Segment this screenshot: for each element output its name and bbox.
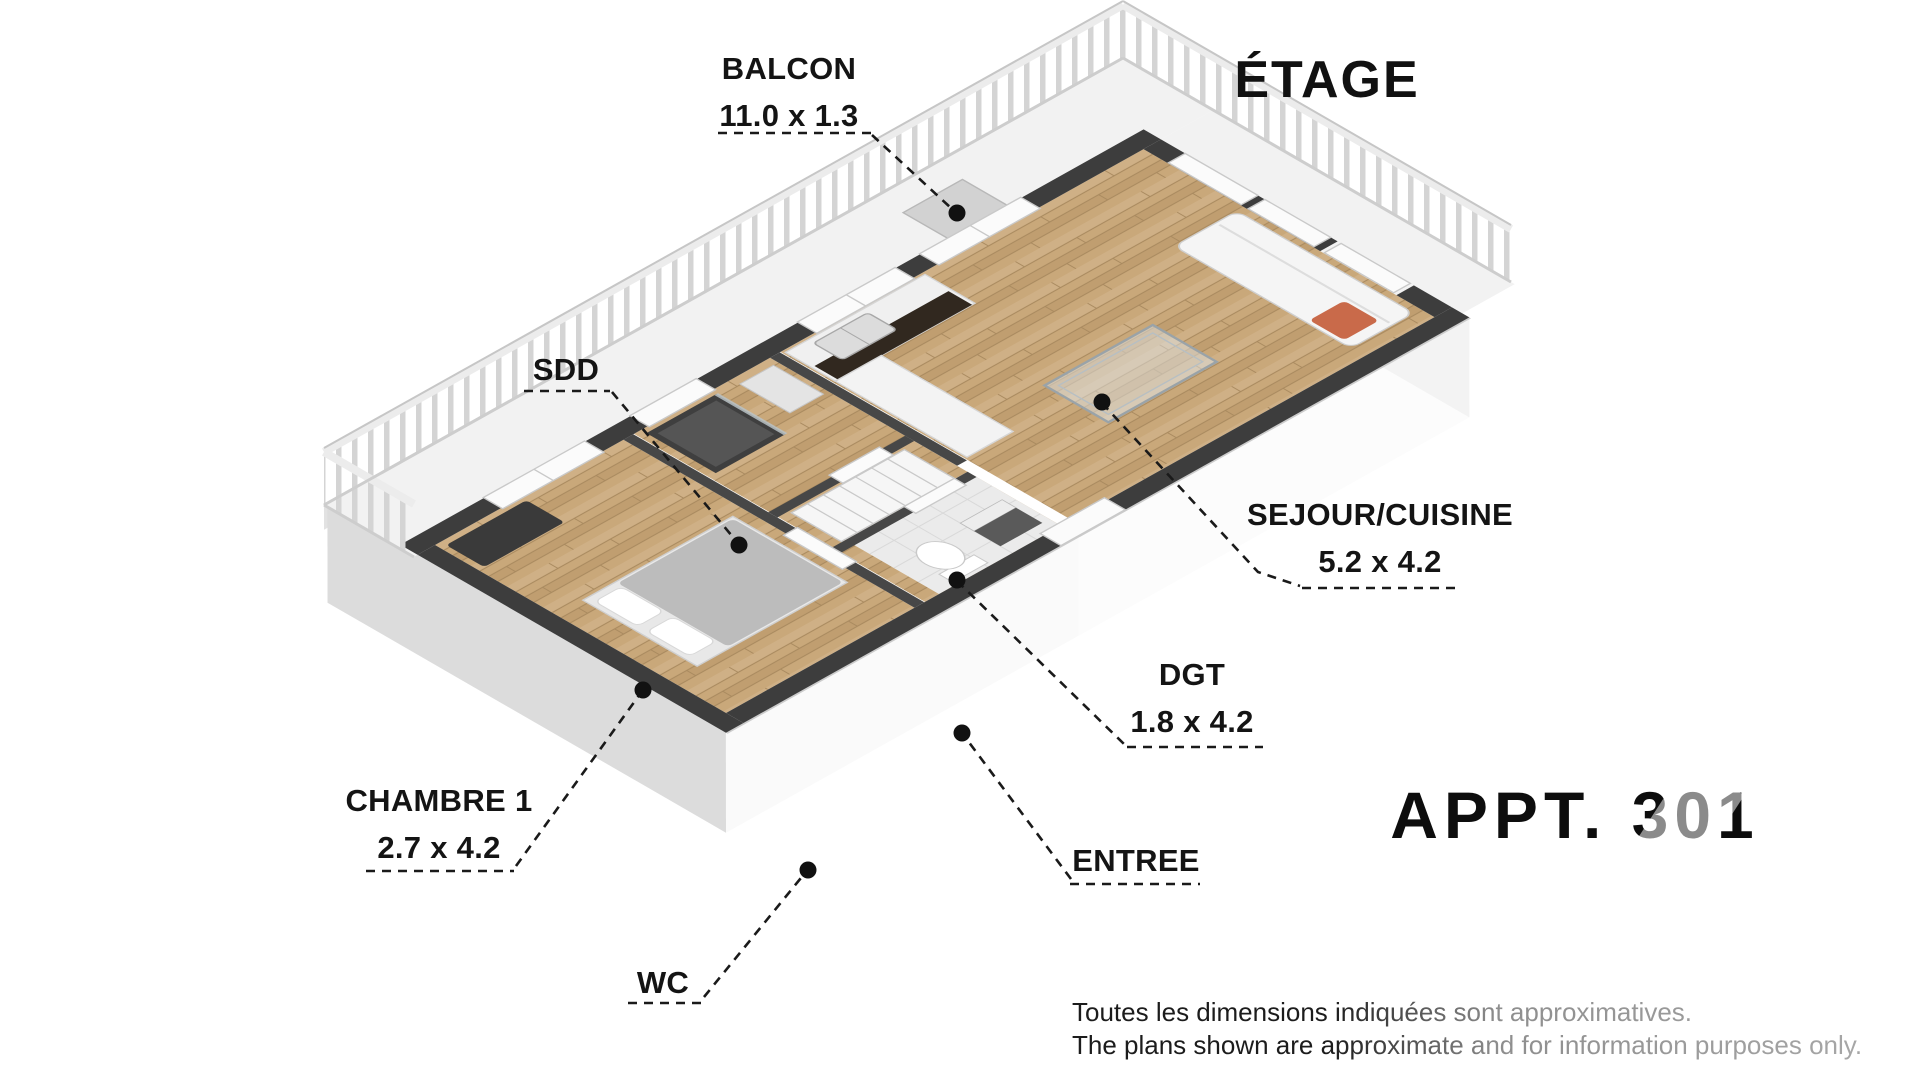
anchor-dots <box>635 205 1111 879</box>
label-sejour-cuisine: SEJOUR/CUISINE 5.2 x 4.2 <box>1247 491 1513 585</box>
annotation-lines <box>0 0 1920 1080</box>
anchor-dot-balcon <box>949 205 966 222</box>
label-wc: WC <box>637 959 689 1006</box>
room-name: WC <box>637 959 689 1006</box>
room-name: DGT <box>1130 651 1253 698</box>
disclaimer-line-en: The plans shown are approximate and for … <box>1072 1029 1862 1062</box>
label-dgt: DGT 1.8 x 4.2 <box>1130 651 1253 745</box>
anchor-dot-chambre <box>635 682 652 699</box>
floor-plan-page: ÉTAGE BALCON 11.0 x 1.3 SDD SEJOUR/CUISI… <box>0 0 1920 1080</box>
anchor-dot-dgt <box>949 572 966 589</box>
room-name: BALCON <box>719 45 858 92</box>
apartment-number: APPT. 301 <box>1390 777 1760 853</box>
room-name: SDD <box>533 346 599 393</box>
room-name: SEJOUR/CUISINE <box>1247 491 1513 538</box>
label-sdd: SDD <box>533 346 599 393</box>
disclaimer-line-fr: Toutes les dimensions indiquées sont app… <box>1072 996 1862 1029</box>
label-balcon: BALCON 11.0 x 1.3 <box>719 45 858 139</box>
label-chambre-1: CHAMBRE 1 2.7 x 4.2 <box>346 777 533 871</box>
anchor-dot-entree <box>954 725 971 742</box>
room-dim: 2.7 x 4.2 <box>346 824 533 871</box>
disclaimer: Toutes les dimensions indiquées sont app… <box>1072 996 1862 1062</box>
anchor-dot-sdd <box>731 537 748 554</box>
room-dim: 5.2 x 4.2 <box>1247 538 1513 585</box>
anchor-dot-wc <box>800 862 817 879</box>
label-entree: ENTREE <box>1072 837 1200 884</box>
room-dim: 1.8 x 4.2 <box>1130 698 1253 745</box>
room-dim: 11.0 x 1.3 <box>719 92 858 139</box>
page-title: ÉTAGE <box>1234 50 1419 110</box>
room-name: CHAMBRE 1 <box>346 777 533 824</box>
anchor-dot-sejour <box>1094 394 1111 411</box>
room-name: ENTREE <box>1072 837 1200 884</box>
